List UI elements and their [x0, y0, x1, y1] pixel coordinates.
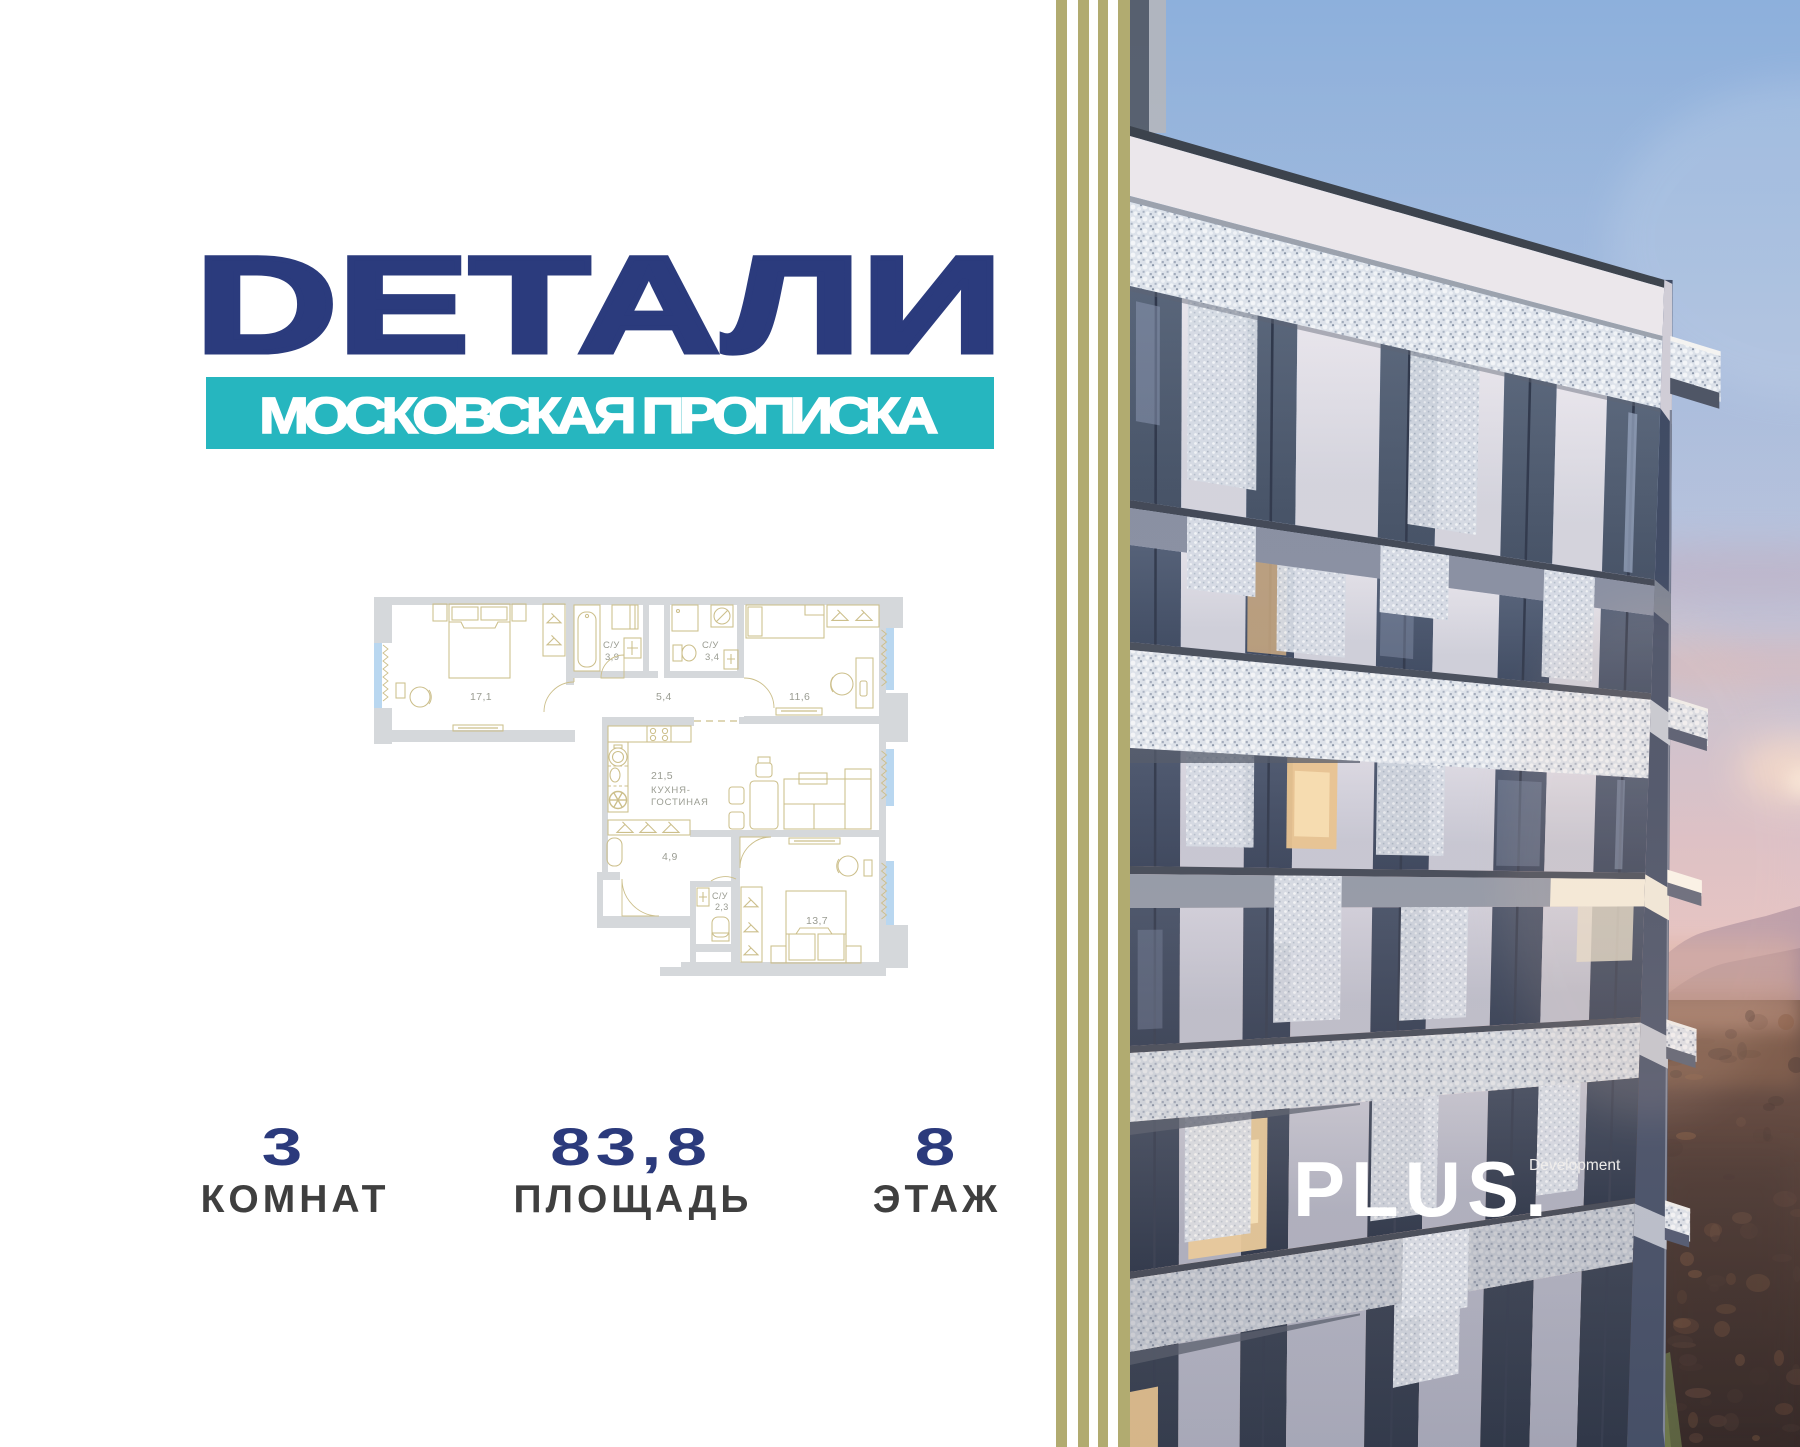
svg-text:DЕТАЛИ: DЕТАЛИ [195, 229, 1003, 382]
svg-text:4,9: 4,9 [662, 851, 678, 863]
svg-text:13,7: 13,7 [806, 915, 828, 927]
svg-text:PLUS.: PLUS. [1293, 1145, 1553, 1233]
svg-text:С/У: С/У [702, 640, 719, 651]
svg-text:С/У: С/У [712, 891, 728, 901]
svg-text:С/У: С/У [603, 640, 620, 651]
svg-text:21,5: 21,5 [651, 770, 673, 782]
svg-text:КУХНЯ-: КУХНЯ- [651, 785, 691, 796]
svg-text:МОСКОВСКАЯ ПРОПИСКА: МОСКОВСКАЯ ПРОПИСКА [259, 387, 939, 444]
svg-text:11,6: 11,6 [789, 691, 810, 703]
svg-text:3,9: 3,9 [605, 652, 619, 663]
svg-text:2,3: 2,3 [715, 902, 729, 912]
svg-text:ГОСТИНАЯ: ГОСТИНАЯ [651, 797, 709, 808]
svg-text:Development: Development [1529, 1157, 1621, 1174]
svg-text:3,4: 3,4 [705, 652, 719, 663]
svg-text:17,1: 17,1 [470, 691, 492, 703]
svg-text:5,4: 5,4 [656, 691, 672, 703]
